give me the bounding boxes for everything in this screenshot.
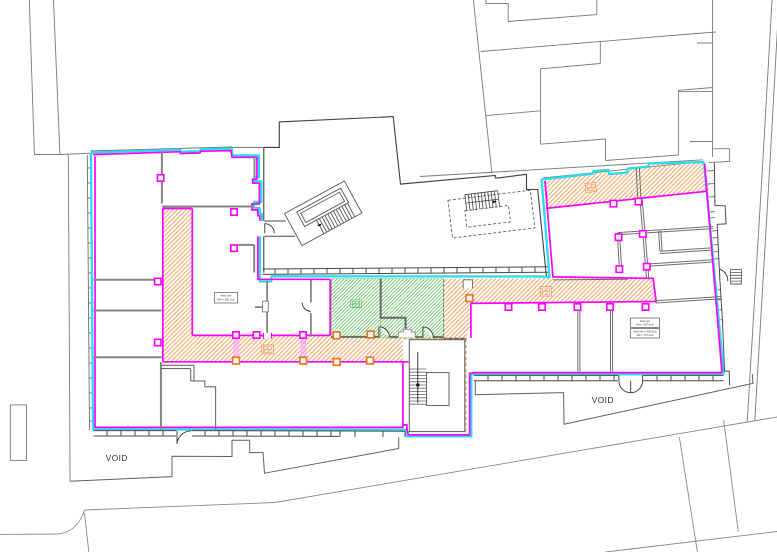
svg-text:VOID: VOID	[106, 454, 128, 463]
svg-text:Area two: Area two	[640, 319, 651, 323]
svg-text:Total NIA = 590.5m2: Total NIA = 590.5m2	[633, 329, 657, 333]
svg-text:VOID: VOID	[592, 396, 614, 405]
svg-text:Area One: Area One	[220, 294, 232, 298]
svg-text:GIA = 767.3m2: GIA = 767.3m2	[636, 333, 654, 337]
svg-text:NIA = 207.4m2: NIA = 207.4m2	[636, 323, 654, 327]
svg-text:NIA = 382.1m2: NIA = 382.1m2	[217, 298, 235, 302]
